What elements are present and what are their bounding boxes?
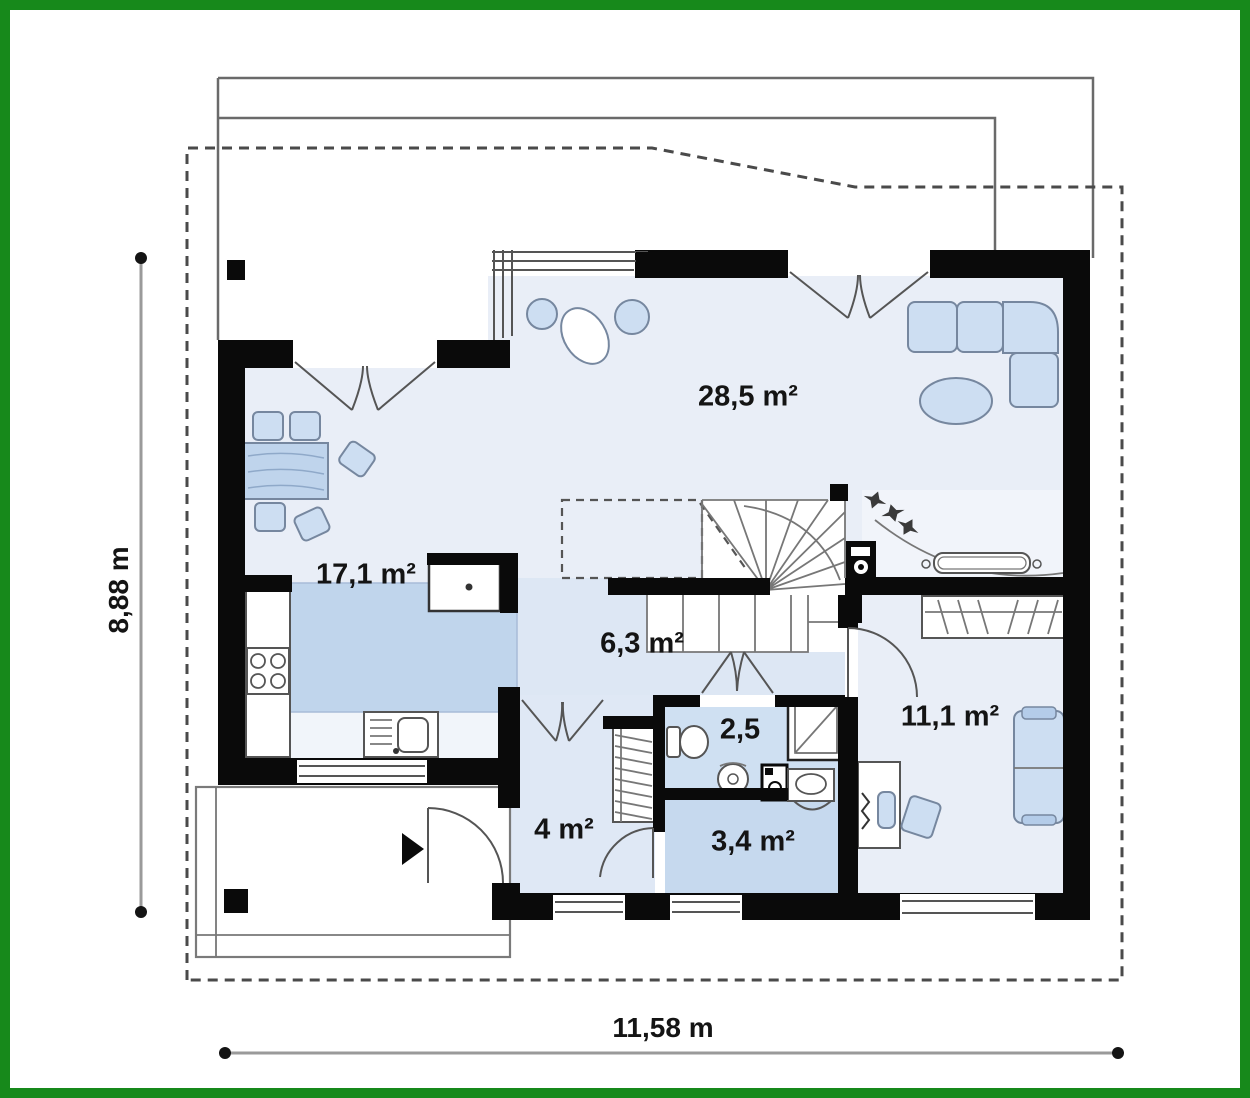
coffee-table [920, 378, 992, 424]
room-label-vestibule: 4 m² [534, 814, 594, 847]
boiler [846, 541, 876, 579]
dimension-label-width: 11,58 m [612, 1012, 713, 1044]
bedroom-wardrobe [922, 596, 1065, 638]
entrance-porch [196, 787, 510, 957]
kitchen-sink-unit [364, 712, 438, 757]
room-label-bathroom: 3,4 m² [711, 826, 795, 859]
room-label-kitchen: 17,1 m² [316, 559, 416, 592]
bed [1014, 707, 1064, 825]
room-label-wc: 2,5 [720, 714, 760, 747]
toilet [667, 726, 708, 758]
room-label-bedroom: 11,1 m² [901, 701, 999, 734]
kitchen-counter-and-stove [246, 589, 290, 757]
floor-plan-image: 28,5 m² 17,1 m² 6,3 m² 2,5 3,4 m² 4 m² 1… [0, 0, 1250, 1098]
room-label-living: 28,5 m² [698, 381, 798, 414]
shower [788, 699, 843, 760]
dimension-label-height: 8,88 m [103, 546, 135, 633]
floor-plan-drawing [0, 0, 1250, 1098]
fireplace [429, 563, 500, 611]
hall-wardrobe [613, 727, 655, 822]
room-label-hall: 6,3 m² [600, 628, 684, 661]
